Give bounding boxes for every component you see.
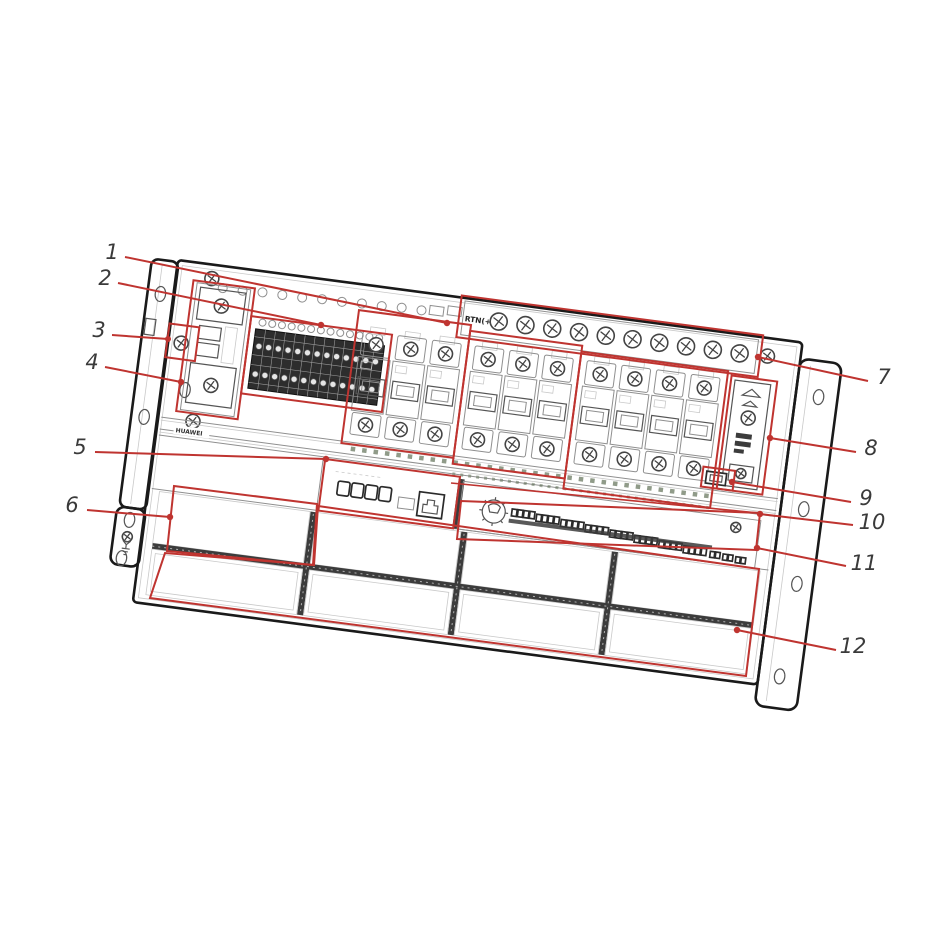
callout-5-dot [323,456,329,462]
callout-6-label: 6 [65,493,78,517]
figure-canvas: RTN(+) [0,0,950,950]
dial-knob [477,495,510,528]
callout-3-line [112,335,168,339]
indicator-button-2 [350,483,364,498]
callout-1-label: 1 [105,240,118,264]
slot-grid [146,492,760,675]
callout-1: 1 [105,240,450,326]
callout-10-label: 10 [859,510,886,534]
lug-icon [741,388,761,407]
callout-7-label: 7 [877,365,891,389]
callout-6-dot [167,514,173,520]
ear-hole [138,409,150,425]
callout-7: 7 [755,354,892,389]
indicator-button-1 [337,481,351,496]
rj45-port [417,492,445,519]
callout-5-label: 5 [73,435,86,459]
breaker-9 [642,365,688,477]
indicator-button-4 [378,486,392,501]
callout-3-dot [165,336,171,342]
callout-3-label: 3 [92,318,105,342]
callout-4-line [105,367,181,382]
callout-10-dot [757,511,763,517]
ear-hole [154,286,166,302]
circuit-breakers [348,326,722,482]
indicator-button-3 [364,485,378,500]
ear-hole [798,501,810,517]
text-smudge [734,441,751,448]
callout-5-line [95,452,326,459]
ear-hole [812,389,824,405]
callout-12-line [737,630,836,650]
callout-9-dot [729,479,735,485]
callout-5: 5 [73,435,329,462]
callout-12: 12 [734,627,867,658]
breaker-5 [495,345,541,457]
signal-terminal-strip [507,509,748,564]
diagram-svg: RTN(+) [0,0,950,950]
callout-11-dot [754,545,760,551]
callout-4-dot [178,379,184,385]
ear-hole [115,550,127,566]
callout-2-dot [318,322,324,328]
ear-hole [773,668,785,684]
callout-9-label: 9 [859,486,872,510]
breaker-8 [607,360,653,472]
highlight-box-6 [167,486,317,565]
panel-screw-right [730,522,741,533]
callout-2-label: 2 [98,266,111,290]
ear-hole [791,576,803,592]
callout-7-dot [755,354,761,360]
monitor-connector [705,471,726,486]
callout-4-label: 4 [85,350,98,374]
callout-11-label: 11 [851,551,878,575]
callout-6-line [87,510,170,517]
label-window [397,497,414,510]
blank-slot-r2c1 [146,549,303,615]
callout-8-dot [767,435,773,441]
callout-8-label: 8 [864,436,877,460]
text-smudge [734,448,744,453]
text-smudge [736,433,753,440]
callout-11-line [757,548,846,566]
callout-12-dot [734,627,740,633]
callout-1-dot [444,320,450,326]
callout-12-label: 12 [840,634,867,658]
callout-3: 3 [92,318,171,342]
callout-8-line [770,438,856,452]
